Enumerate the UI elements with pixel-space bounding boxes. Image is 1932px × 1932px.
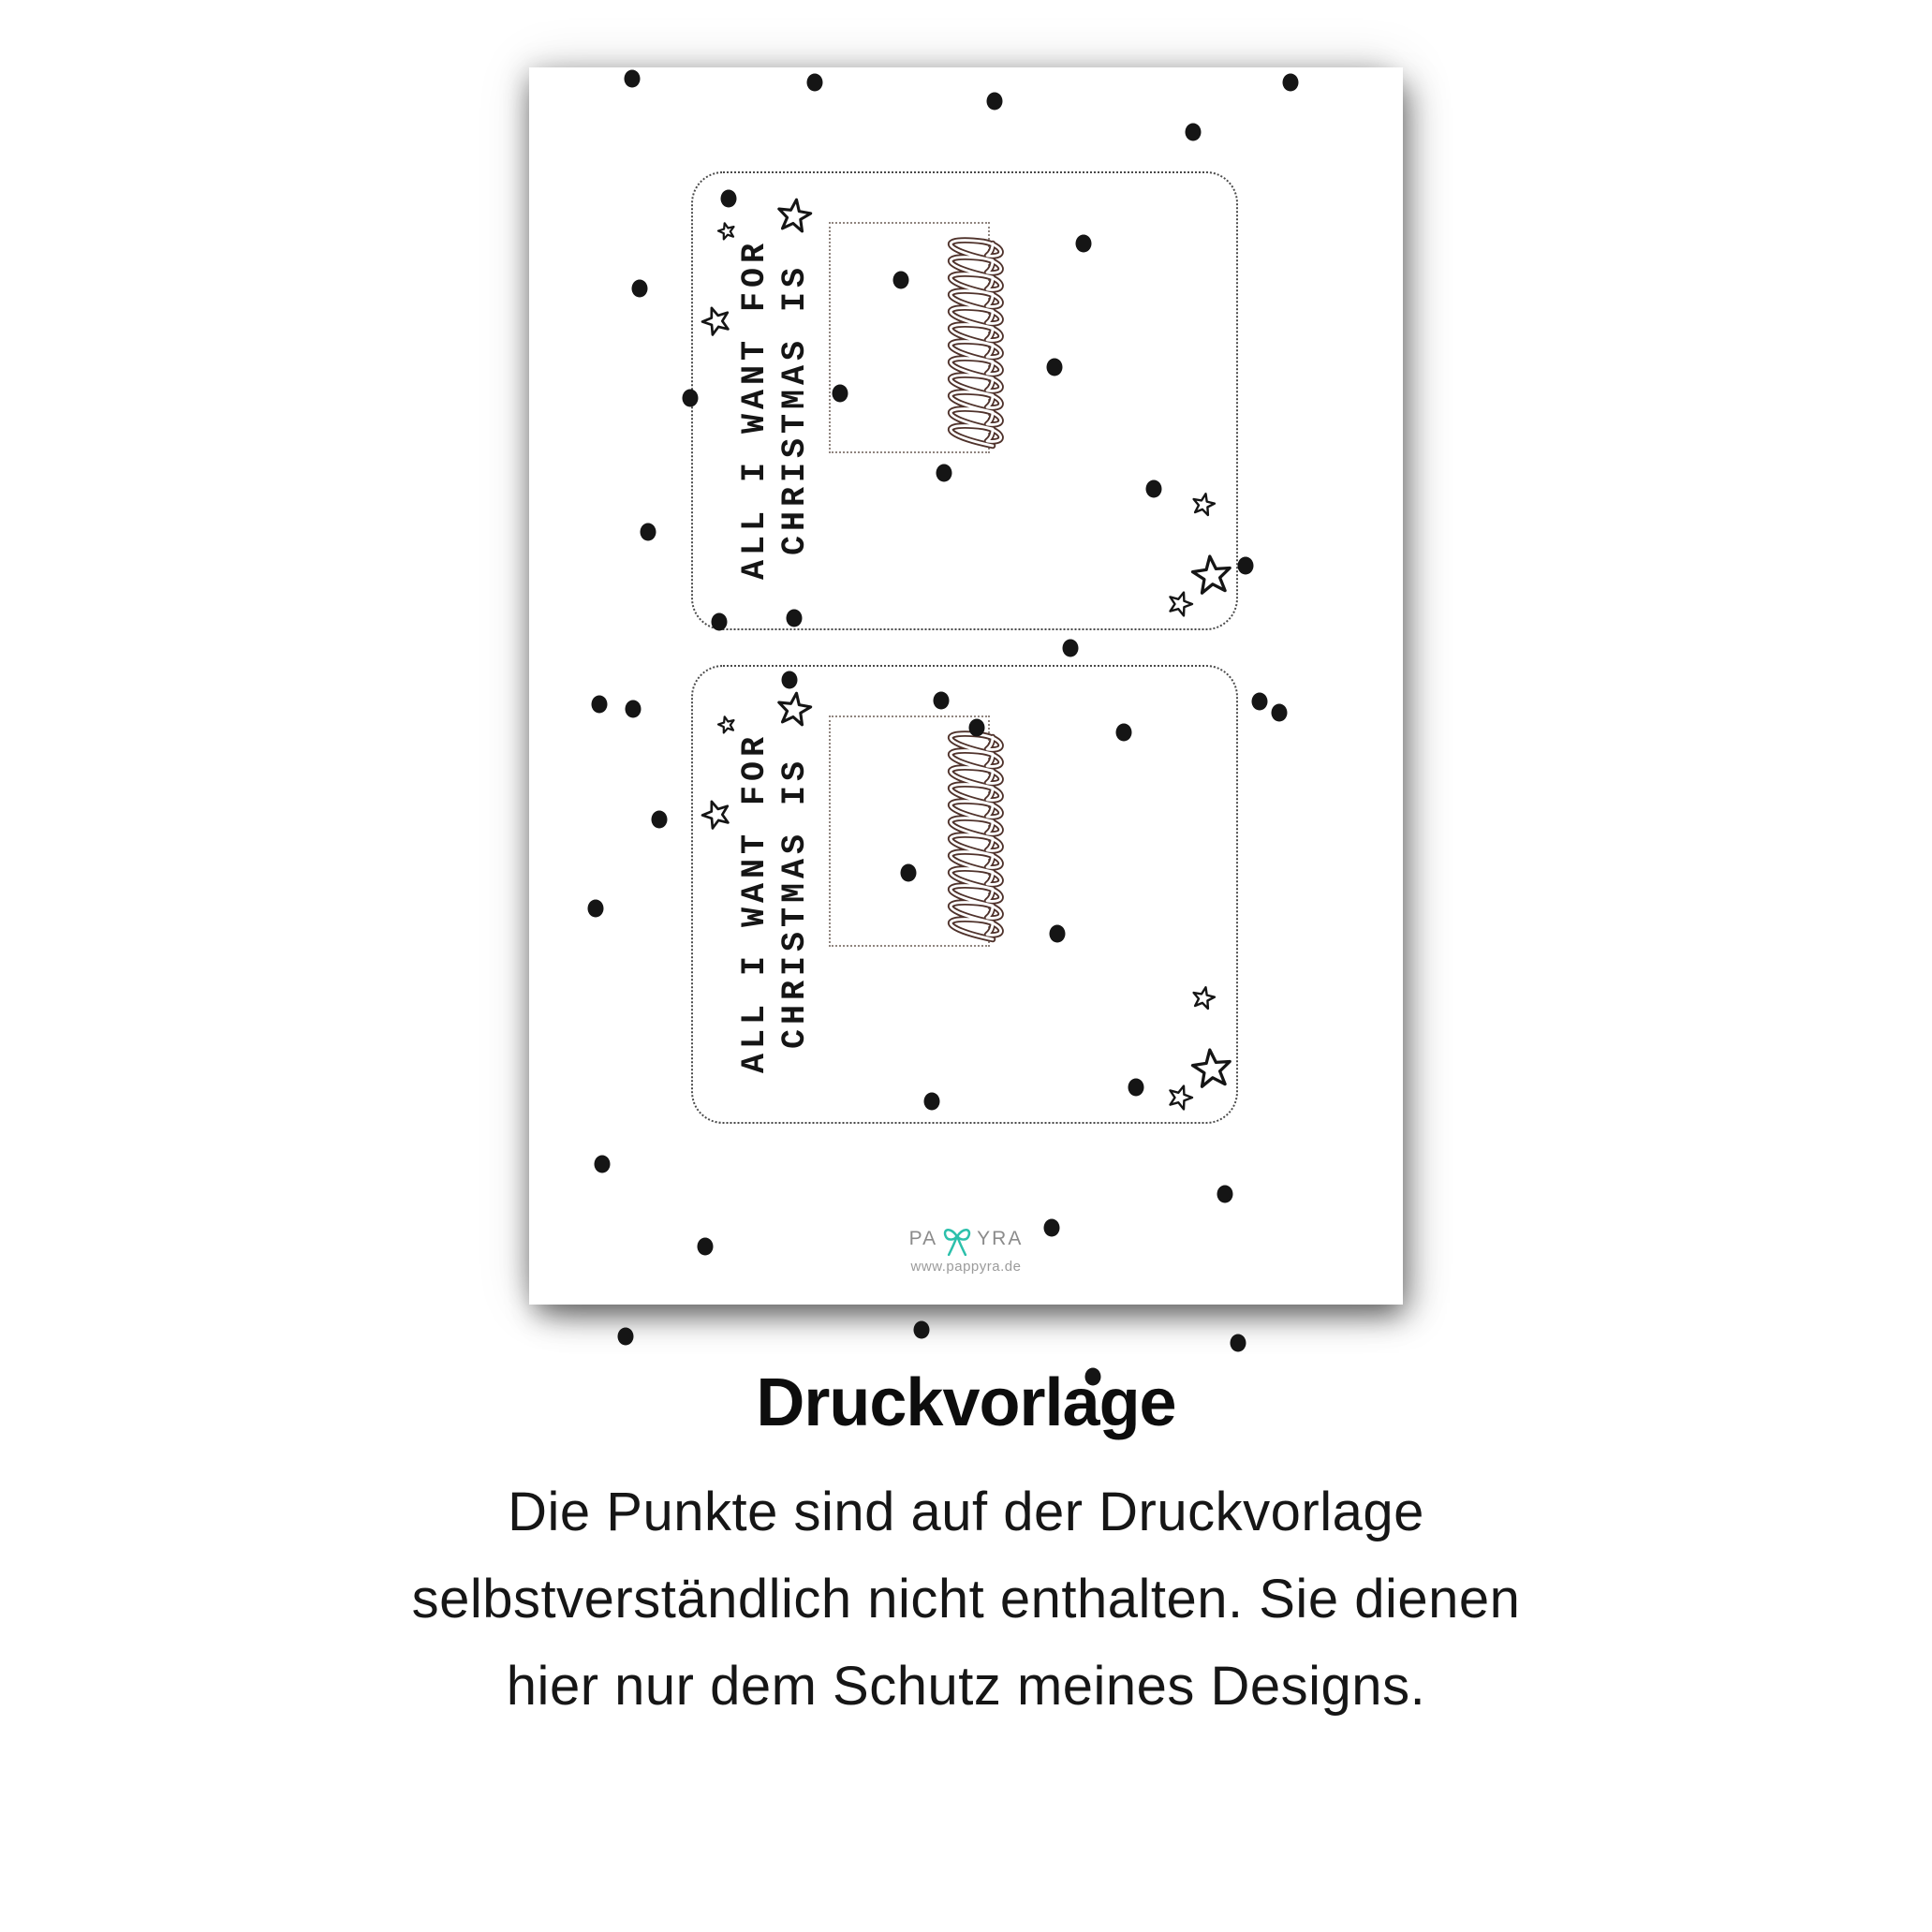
confetti-dot — [626, 701, 642, 718]
brand-logo-row: PA YRA — [909, 1222, 1024, 1256]
confetti-dot — [1076, 235, 1092, 253]
website-url: www.pappyra.de — [529, 1259, 1403, 1275]
confetti-dot — [1238, 557, 1254, 575]
confetti-dot — [592, 696, 608, 714]
caption-line-2: selbstverständlich nicht enthalten. Sie … — [0, 1556, 1932, 1643]
confetti-dot — [618, 1328, 634, 1346]
confetti-dot — [833, 385, 848, 403]
caption-line-3: hier nur dem Schutz meines Designs. — [0, 1643, 1932, 1730]
gift-card-template-1: ALL I WANT FOR CHRISTMAS IS — [691, 171, 1238, 630]
caption-title: Druckvorlage — [0, 1365, 1932, 1440]
confetti-dot — [1283, 74, 1299, 92]
confetti-dot — [937, 465, 952, 482]
confetti-dot — [787, 610, 803, 627]
star-icon — [714, 218, 740, 244]
confetti-dot — [652, 811, 668, 829]
confetti-dot — [632, 280, 648, 298]
caption-paragraph: Die Punkte sind auf der Druckvorlage sel… — [0, 1468, 1932, 1730]
logo-text-right: YRA — [977, 1222, 1023, 1256]
confetti-dot — [807, 74, 823, 92]
confetti-dot — [914, 1321, 930, 1339]
confetti-dot — [924, 1093, 940, 1111]
confetti-dot — [934, 692, 950, 710]
bow-icon — [942, 1222, 972, 1256]
confetti-dot — [1272, 704, 1288, 722]
confetti-dot — [782, 671, 798, 689]
star-icon — [773, 688, 816, 731]
confetti-dot — [987, 93, 1003, 111]
confetti-dot — [1047, 359, 1063, 376]
star-icon — [698, 796, 735, 833]
gift-card-template-2: ALL I WANT FOR CHRISTMAS IS — [691, 665, 1238, 1124]
star-icon — [698, 302, 735, 340]
stars-layer — [693, 173, 1236, 628]
confetti-dot — [1116, 724, 1132, 742]
confetti-dot — [1231, 1335, 1246, 1352]
confetti-dot — [1063, 640, 1079, 657]
confetti-dot — [893, 272, 909, 289]
confetti-dot — [595, 1156, 611, 1173]
star-icon — [714, 712, 740, 738]
confetti-dot — [1146, 480, 1162, 498]
confetti-dot — [969, 719, 985, 737]
star-icon — [1187, 982, 1219, 1014]
caption-line-1: Die Punkte sind auf der Druckvorlage — [0, 1468, 1932, 1556]
confetti-dot — [641, 524, 656, 541]
confetti-dot — [1128, 1079, 1144, 1097]
star-icon — [1163, 1081, 1197, 1114]
print-sheet: ALL I WANT FOR CHRISTMAS IS ALL I WANT F… — [529, 67, 1403, 1305]
confetti-dot — [625, 70, 641, 88]
logo-text-left: PA — [909, 1222, 937, 1256]
brand-logo: PA YRA www.pappyra.de — [529, 1222, 1403, 1275]
confetti-dot — [683, 390, 699, 407]
confetti-dot — [1252, 693, 1268, 711]
confetti-dot — [1217, 1186, 1233, 1203]
confetti-dot — [712, 613, 728, 631]
product-image: ALL I WANT FOR CHRISTMAS IS ALL I WANT F… — [0, 0, 1932, 1932]
confetti-dot — [721, 190, 737, 208]
star-icon — [1187, 489, 1219, 521]
star-icon — [773, 195, 816, 238]
confetti-dot — [1186, 124, 1202, 141]
star-icon — [1163, 587, 1197, 621]
stars-layer — [693, 667, 1236, 1122]
confetti-dot — [1050, 925, 1066, 943]
confetti-dot — [588, 900, 604, 918]
confetti-dot — [901, 864, 917, 882]
